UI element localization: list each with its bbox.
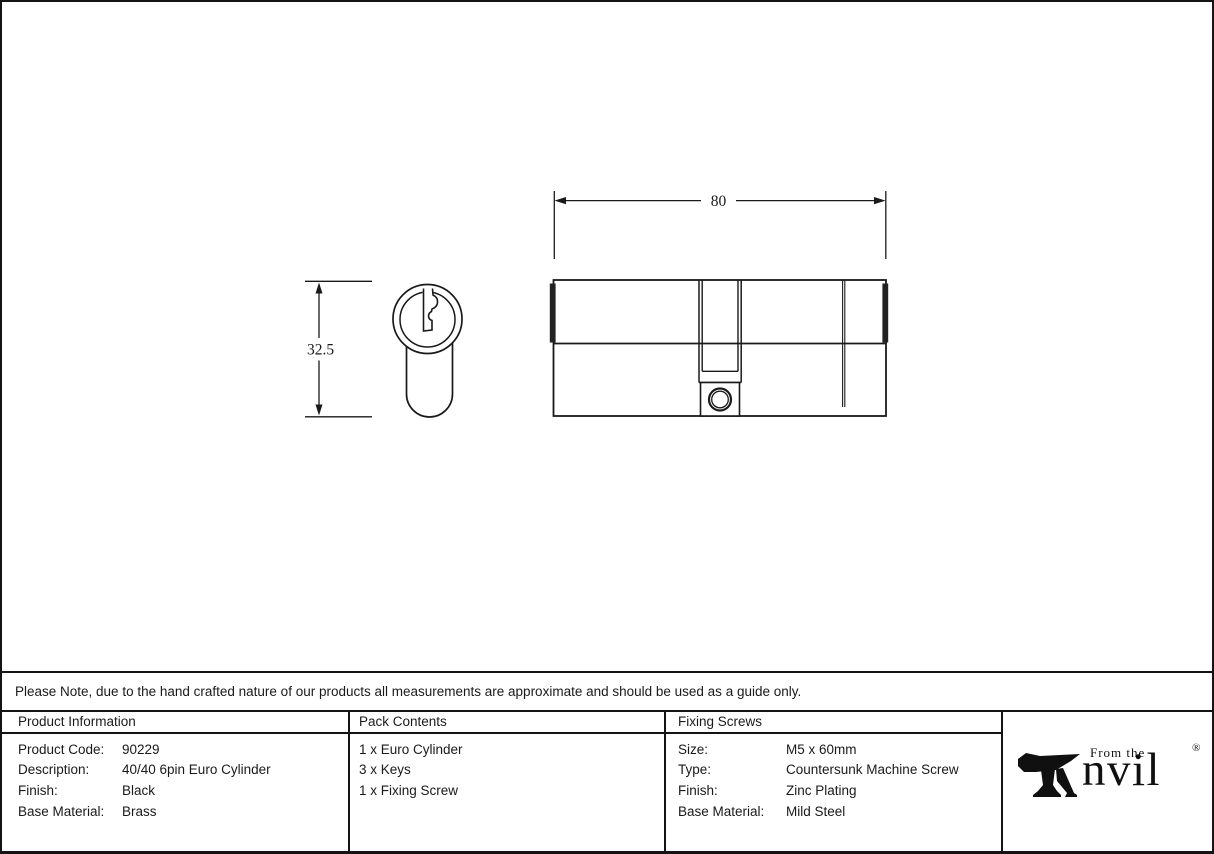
fixing-screws-cell: Size: M5 x 60mm Type: Countersunk Machin… [678,739,998,821]
pack-item: 1 x Euro Cylinder [359,739,657,760]
measurement-note: Please Note, due to the hand crafted nat… [15,673,801,709]
end-tab-left [550,284,556,343]
spec-value: Brass [122,804,157,819]
height-dim-text: 32.5 [307,342,334,359]
spec-label: Base Material: [678,804,786,819]
spec-value: Countersunk Machine Screw [786,762,959,777]
keyhole-front-view: 32.5 [305,281,462,417]
spec-row-finish: Finish: Black [18,780,340,801]
divider-fixing-logo [1001,710,1003,851]
header-row-top-border [2,710,1212,712]
spec-row-product-code: Product Code: 90229 [18,739,340,760]
length-dim-arrow-left [555,197,567,204]
measurement-note-text: Please Note, due to the hand crafted nat… [15,684,801,699]
spec-row-description: Description: 40/40 6pin Euro Cylinder [18,760,340,781]
cylinder-side-view: 80 [550,191,888,416]
height-dim-arrow-up [316,283,323,294]
length-dim-text: 80 [711,193,727,210]
registered-trademark-symbol: ® [1192,742,1200,754]
pack-contents-cell: 1 x Euro Cylinder 3 x Keys 1 x Fixing Sc… [359,739,657,801]
spec-row-base-material: Base Material: Mild Steel [678,801,998,822]
spec-value: 40/40 6pin Euro Cylinder [122,762,271,777]
spec-value: 90229 [122,742,160,757]
spec-label: Type: [678,762,786,777]
spec-label: Description: [18,762,122,777]
product-information-header: Product Information [18,710,136,732]
spec-label: Base Material: [18,804,122,819]
technical-drawing: 32.5 80 [2,2,1212,669]
spec-value: M5 x 60mm [786,742,857,757]
from-the-anvil-logo: From the nvil ® [1010,744,1208,808]
pack-contents-header-label: Pack Contents [359,714,447,729]
product-information-header-label: Product Information [18,714,136,729]
spec-row-base-material: Base Material: Brass [18,801,340,822]
product-information-cell: Product Code: 90229 Description: 40/40 6… [18,739,340,821]
logo-name-text: nvil [1082,743,1161,797]
divider-pack-fixing [664,710,666,851]
spec-value: Mild Steel [786,804,845,819]
spec-row-size: Size: M5 x 60mm [678,739,998,760]
spec-label: Size: [678,742,786,757]
spec-row-finish: Finish: Zinc Plating [678,780,998,801]
spec-value: Zinc Plating [786,783,857,798]
spec-label: Finish: [18,783,122,798]
pack-item: 3 x Keys [359,760,657,781]
length-dim-arrow-right [874,197,886,204]
spec-label: Finish: [678,783,786,798]
height-dim-arrow-down [316,405,323,416]
spec-row-type: Type: Countersunk Machine Screw [678,760,998,781]
fixing-screws-header: Fixing Screws [678,710,762,732]
pack-contents-header: Pack Contents [359,710,447,732]
header-row-bottom-border [2,732,1003,734]
anvil-icon [1016,751,1082,799]
product-spec-sheet: 32.5 80 [0,0,1214,854]
fixing-screws-header-label: Fixing Screws [678,714,762,729]
spec-value: Black [122,783,155,798]
end-tab-right [882,284,888,343]
divider-product-pack [348,710,350,851]
pack-item: 1 x Fixing Screw [359,780,657,801]
spec-label: Product Code: [18,742,122,757]
